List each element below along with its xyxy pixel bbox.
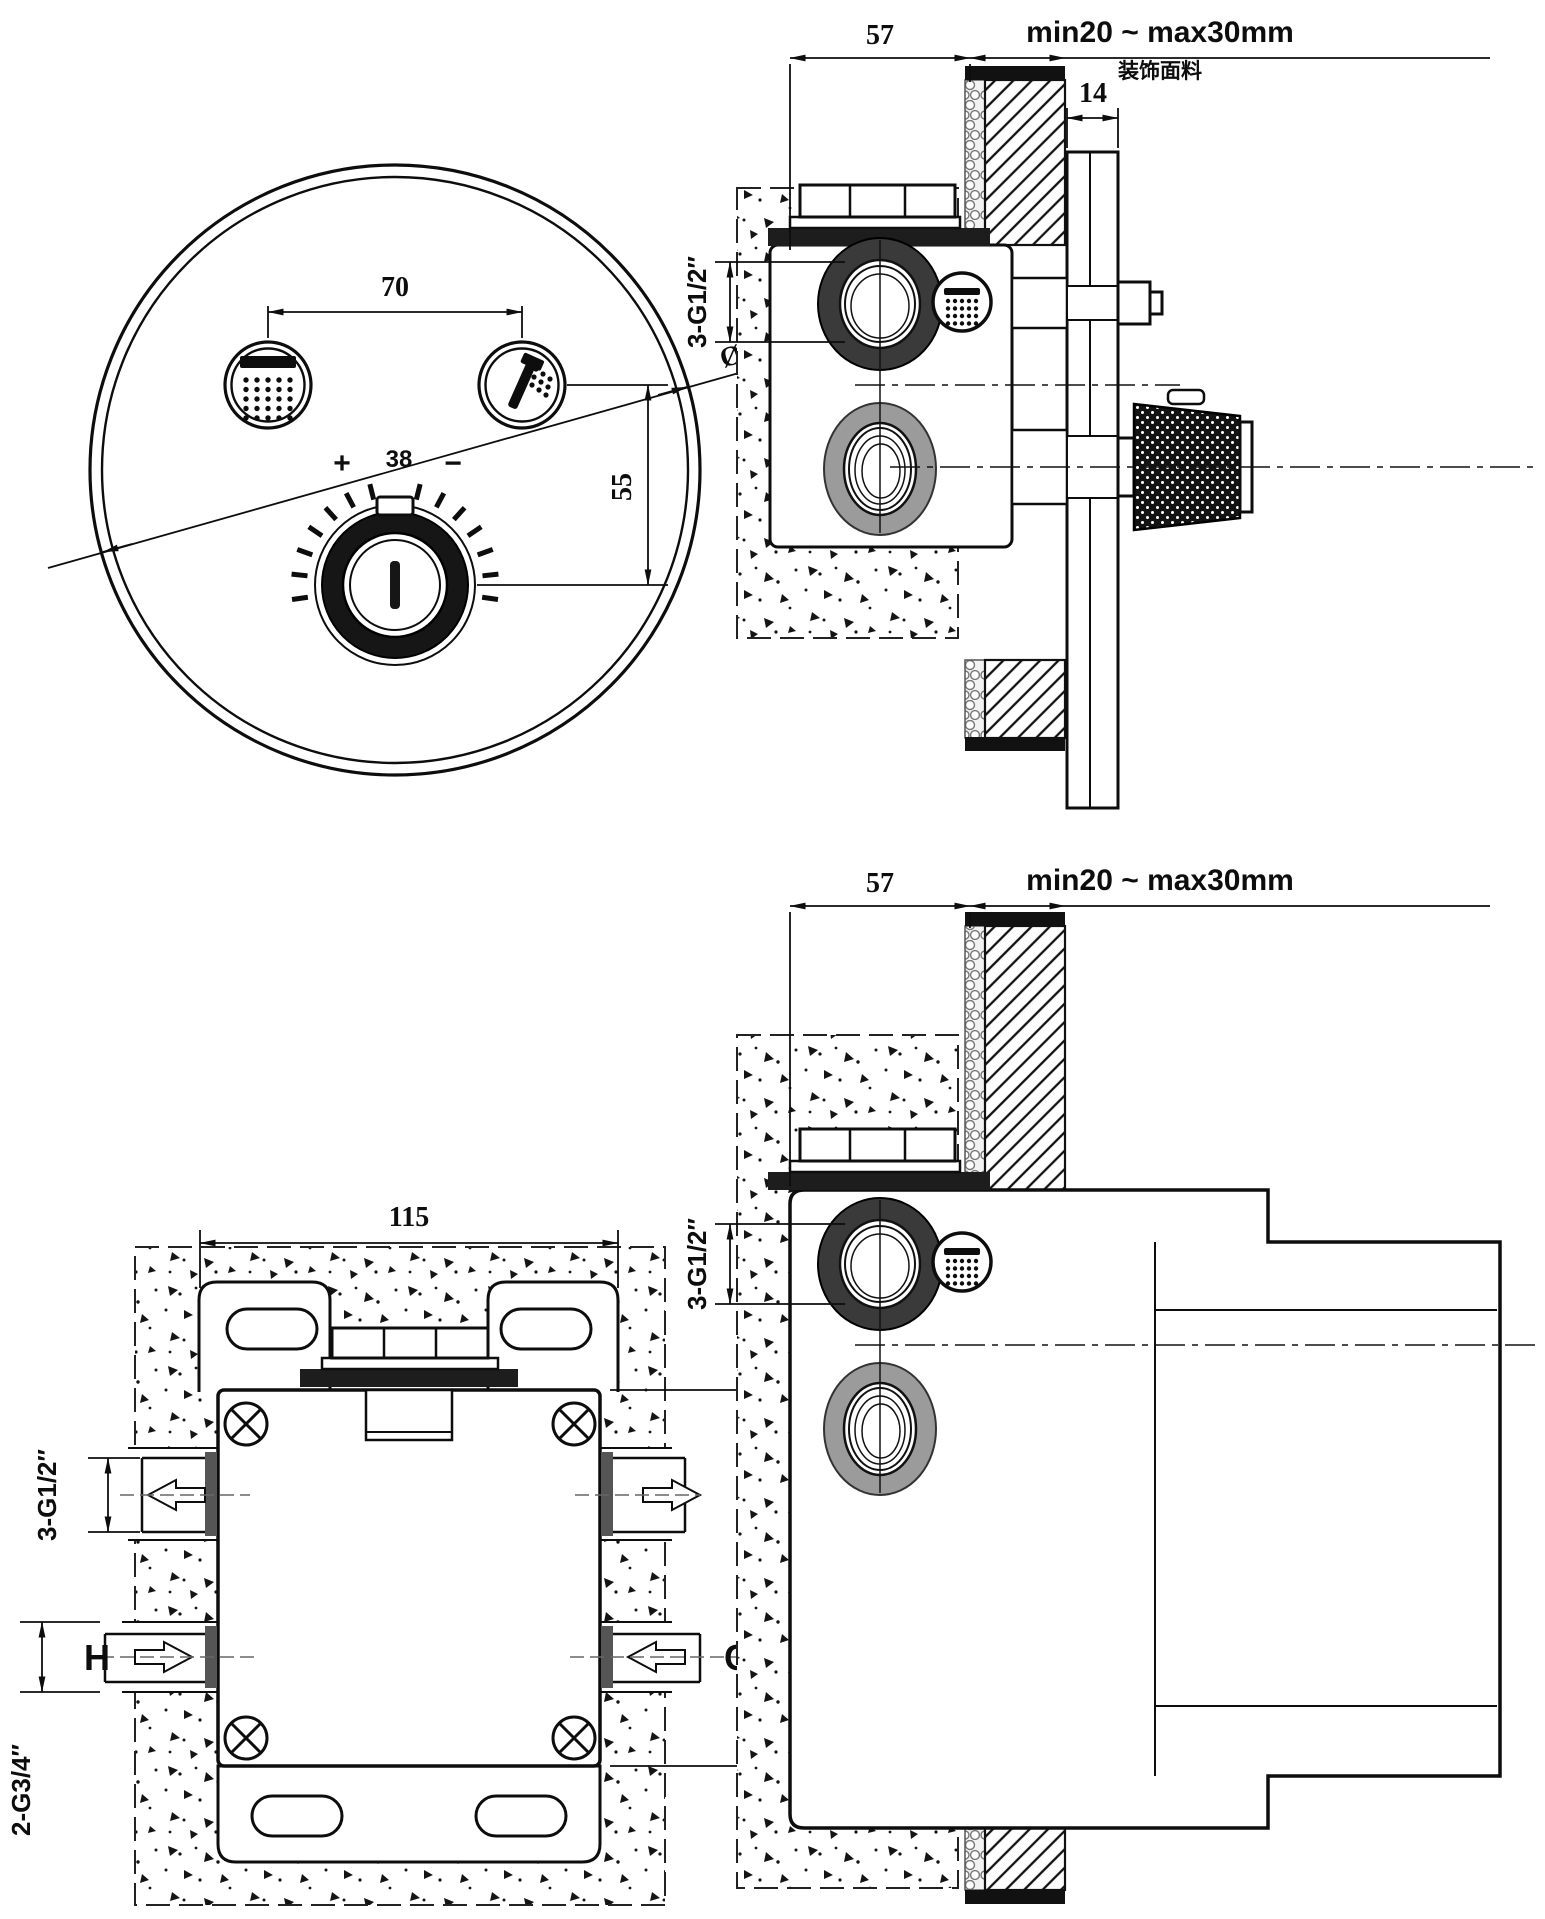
icon-dot xyxy=(276,377,281,382)
icon-dot xyxy=(531,374,536,379)
icon-dot xyxy=(243,396,248,401)
icon-dot xyxy=(543,392,548,397)
icon-dot xyxy=(967,1266,971,1270)
icon-dot xyxy=(254,396,259,401)
icon-dot xyxy=(960,1281,964,1285)
icon-dot xyxy=(254,406,259,411)
icon-dot xyxy=(967,1259,971,1263)
icon-dot xyxy=(953,306,957,310)
icon-dot xyxy=(276,387,281,392)
knob-tick xyxy=(482,597,498,599)
icon-dot xyxy=(254,415,259,420)
side-shower-icon xyxy=(933,273,991,331)
icon-dot xyxy=(946,1259,950,1263)
icon-dot xyxy=(276,396,281,401)
temp-value-label: 38 xyxy=(386,446,413,473)
icon-dot xyxy=(547,376,552,381)
outlet-thread-label: 3-G1/2″ xyxy=(682,256,712,348)
icon-dot xyxy=(243,387,248,392)
icon-dot xyxy=(254,387,259,392)
inlet-thread-label: 2-G3/4″ xyxy=(6,1744,36,1836)
installed-section-view: 57 min20 ~ max30mm 装饰面料 14 3-G1/2″ xyxy=(682,16,1535,808)
icon-dot xyxy=(287,387,292,392)
icon-dot xyxy=(960,1266,964,1270)
icon-dot xyxy=(953,299,957,303)
temp-plus-label: + xyxy=(333,447,351,480)
icon-dot xyxy=(974,1266,978,1270)
icon-dot xyxy=(967,306,971,310)
icon-dot xyxy=(265,396,270,401)
outlet-thread-label: 3-G1/2″ xyxy=(32,1449,62,1541)
icon-dot xyxy=(953,1266,957,1270)
icon-dot xyxy=(953,314,957,318)
icon-dot xyxy=(545,384,550,389)
icon-dot xyxy=(974,299,978,303)
depth-label: 57 xyxy=(866,20,894,51)
icon-dot xyxy=(974,1281,978,1285)
knob-tick xyxy=(483,574,499,576)
icon-dot xyxy=(287,415,292,420)
icon-dot xyxy=(974,306,978,310)
tile-note-label: 装饰面料 xyxy=(1118,59,1202,83)
rain-shower-button xyxy=(225,342,311,428)
bracket-slot xyxy=(227,1309,317,1349)
temperature-knob-side xyxy=(1012,390,1252,530)
icon-dot xyxy=(974,1274,978,1278)
icon-dot xyxy=(960,1274,964,1278)
icon-dot xyxy=(946,321,950,325)
icon-dot xyxy=(967,314,971,318)
installation-drawing: Ø 180 70 + xyxy=(0,0,1545,1919)
icon-dot xyxy=(960,299,964,303)
box-width-label: 115 xyxy=(389,1202,429,1233)
icon-dot xyxy=(946,1274,950,1278)
bracket-slot xyxy=(501,1309,591,1349)
icon-dot xyxy=(265,387,270,392)
icon-dot xyxy=(946,1281,950,1285)
icon-dot xyxy=(265,415,270,420)
icon-dot xyxy=(946,306,950,310)
icon-dot xyxy=(529,382,534,387)
icon-dot xyxy=(960,306,964,310)
adhesive-backer-layer xyxy=(965,926,985,1190)
front-view: Ø 180 70 + xyxy=(48,165,838,775)
drawing-page: Ø 180 70 + xyxy=(0,0,1545,1919)
outlet-thread-label: 3-G1/2″ xyxy=(682,1218,712,1310)
icon-dot xyxy=(960,321,964,325)
hot-label: H xyxy=(84,1637,110,1678)
screw xyxy=(225,1403,267,1445)
icon-dot xyxy=(538,379,543,384)
icon-dot xyxy=(946,1266,950,1270)
icon-dot xyxy=(276,406,281,411)
icon-dot xyxy=(974,321,978,325)
knob-indicator-slot xyxy=(390,561,400,609)
shower-button-side xyxy=(1012,278,1162,328)
icon-dot xyxy=(960,314,964,318)
icon-dot xyxy=(243,377,248,382)
depth-label: 57 xyxy=(866,868,894,899)
side-shower-icon xyxy=(933,1233,991,1291)
knob-tick xyxy=(292,597,308,599)
dim-plate-thickness xyxy=(1067,108,1118,148)
adhesive-backer-layer xyxy=(965,80,985,245)
icon-dot xyxy=(265,377,270,382)
icon-dot xyxy=(960,1259,964,1263)
icon-dot xyxy=(967,1281,971,1285)
icon-dot xyxy=(946,299,950,303)
tile-range-label: min20 ~ max30mm xyxy=(1026,864,1294,897)
icon-dot xyxy=(536,387,541,392)
icon-dot xyxy=(953,1274,957,1278)
icon-dot xyxy=(953,321,957,325)
icon-dot xyxy=(287,396,292,401)
icon-dot xyxy=(967,321,971,325)
icon-dot xyxy=(967,299,971,303)
button-spacing-label: 70 xyxy=(381,272,409,303)
icon-dot xyxy=(946,314,950,318)
tile-range-label: min20 ~ max30mm xyxy=(1026,16,1294,49)
rough-in-box xyxy=(218,1390,600,1766)
icon-dot xyxy=(287,377,292,382)
screw xyxy=(553,1717,595,1759)
hand-shower-button xyxy=(479,342,565,428)
bracket-slot xyxy=(476,1796,566,1836)
screw xyxy=(553,1403,595,1445)
icon-dot xyxy=(276,415,281,420)
icon-dot xyxy=(265,406,270,411)
temp-minus-label: − xyxy=(444,447,462,480)
icon-dot xyxy=(243,415,248,420)
screw xyxy=(225,1717,267,1759)
button-knob-distance-label: 55 xyxy=(607,473,638,501)
knob-safety-button xyxy=(377,497,413,515)
icon-dot xyxy=(533,366,538,371)
icon-dot xyxy=(953,1259,957,1263)
icon-dot xyxy=(974,314,978,318)
icon-dot xyxy=(974,1259,978,1263)
icon-dot xyxy=(287,406,292,411)
icon-dot xyxy=(243,406,248,411)
bracket-slot xyxy=(252,1796,342,1836)
plate-thickness-label: 14 xyxy=(1079,78,1107,109)
icon-dot xyxy=(254,377,259,382)
icon-dot xyxy=(967,1274,971,1278)
knob-tick xyxy=(292,574,308,576)
icon-dot xyxy=(540,371,545,376)
icon-dot xyxy=(953,1281,957,1285)
rough-in-box-section-view: 57 min20 ~ max30mm 3-G1/2″ xyxy=(682,864,1540,1904)
